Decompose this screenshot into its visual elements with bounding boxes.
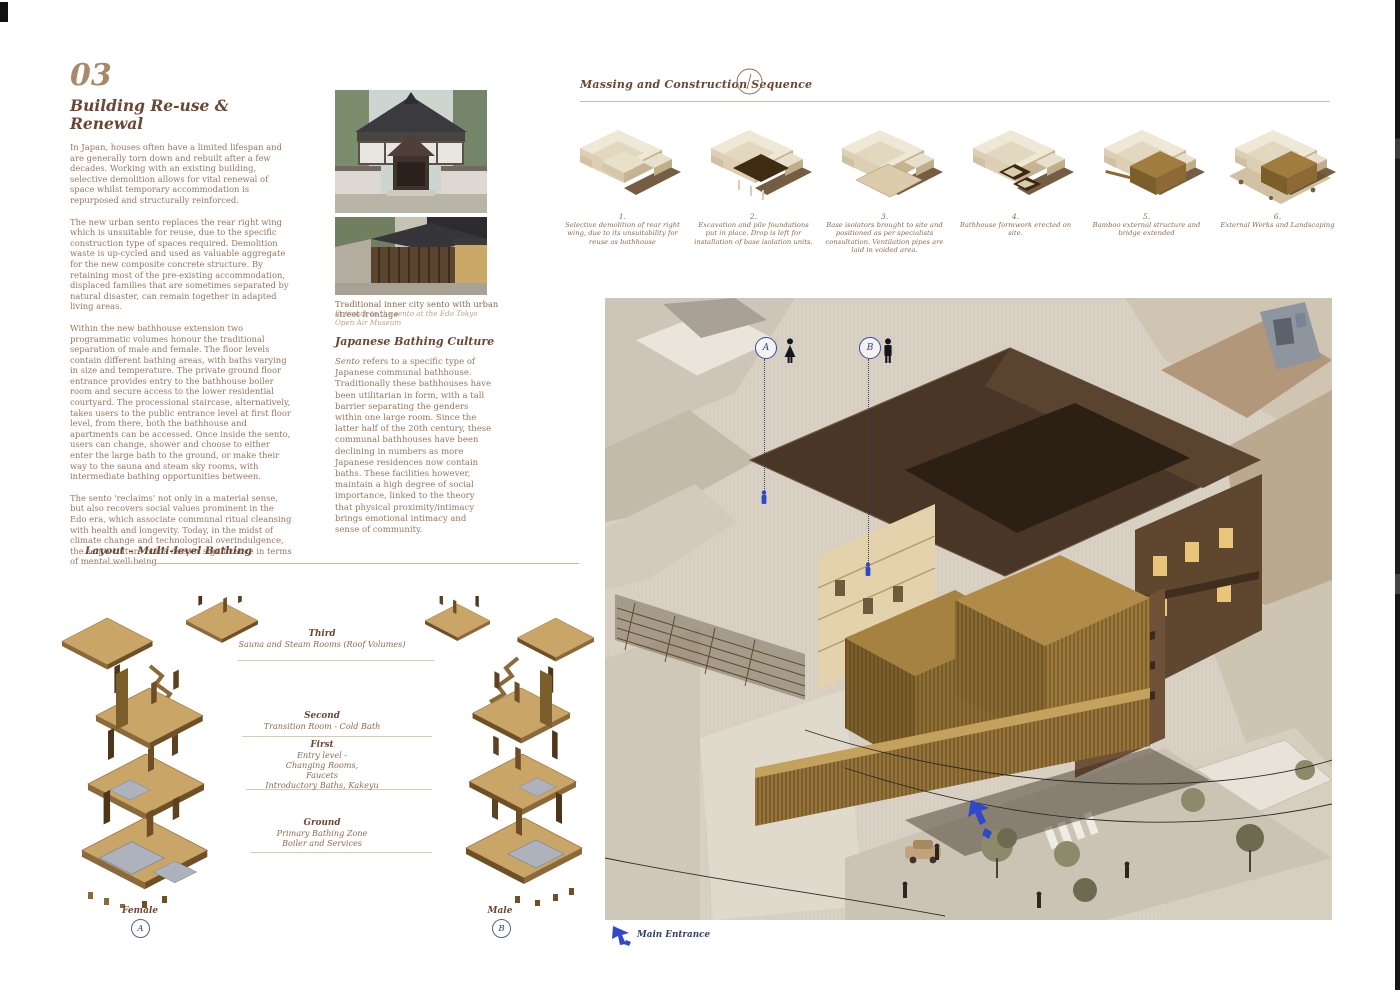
male-marker-b: B xyxy=(492,919,511,938)
portfolio-board: 03 Building Re-use & Renewal In Japan, h… xyxy=(0,0,1400,990)
layout-heading: Layout – Multi-level Bathing xyxy=(85,545,252,557)
render-marker-a: A xyxy=(755,337,777,359)
level-name: First xyxy=(232,740,412,750)
step-number: 5. xyxy=(1143,212,1150,221)
photo-sento-facade xyxy=(335,90,487,213)
drop-line-b xyxy=(868,359,869,569)
step-caption: External Works and Landscaping xyxy=(1217,221,1339,229)
massing-step-4: 4. Bathhouse formwork erected on site. xyxy=(950,110,1081,255)
bathing-culture-heading: Japanese Bathing Culture xyxy=(335,335,494,348)
level-desc: Changing Rooms, xyxy=(232,760,412,770)
massing-diagram-1 xyxy=(562,110,684,210)
step-caption: Selective demolition of rear right wing,… xyxy=(562,221,684,246)
page-title: Building Re-use & Renewal xyxy=(70,97,229,133)
sento-street-illustration xyxy=(335,217,487,295)
step-caption: Bamboo external structure and bridge ext… xyxy=(1086,221,1208,238)
level-desc: Introductory Baths, Kakeyu xyxy=(232,780,412,790)
massing-step-6: 6. External Works and Landscaping xyxy=(1212,110,1343,255)
massing-rule xyxy=(580,101,1330,102)
sento-facade-illustration xyxy=(335,90,487,213)
main-entrance-arrow-icon xyxy=(611,924,633,946)
step-number: 6. xyxy=(1274,212,1281,221)
level-desc: Boiler and Services xyxy=(232,838,412,848)
level-desc: Faucets xyxy=(232,770,412,780)
render-marker-b: B xyxy=(859,337,881,359)
massing-step-1: 1. Selective demolition of rear right wi… xyxy=(557,110,688,255)
massing-diagram-5 xyxy=(1086,110,1208,210)
level-label-second: Second Transition Room - Cold Bath xyxy=(232,711,412,731)
massing-steps: 1. Selective demolition of rear right wi… xyxy=(557,110,1343,255)
level-name: Ground xyxy=(232,818,412,828)
massing-step-2: 2. Excavation and pile foundations put i… xyxy=(688,110,819,255)
intro-text: In Japan, houses often have a limited li… xyxy=(70,142,292,578)
bathing-culture-lead: Sento xyxy=(335,357,360,367)
intro-paragraph: In Japan, houses often have a limited li… xyxy=(70,142,292,206)
scan-corner-mark xyxy=(0,2,8,22)
step-caption: Bathhouse formwork erected on site. xyxy=(955,221,1077,238)
female-label: Female xyxy=(100,906,180,916)
building-render: A B xyxy=(605,298,1332,920)
massing-step-5: 5. Bamboo external structure and bridge … xyxy=(1081,110,1212,255)
female-marker-a: A xyxy=(131,919,150,938)
massing-diagram-4 xyxy=(955,110,1077,210)
main-entrance-label: Main Entrance xyxy=(637,930,710,940)
level-label-first: First Entry level - Changing Rooms, Fauc… xyxy=(232,740,412,790)
scan-edge-strip xyxy=(1395,0,1400,990)
photo-sento-street xyxy=(335,217,487,295)
north-arrow-icon xyxy=(736,68,763,95)
intro-paragraph: Within the new bathhouse extension two p… xyxy=(70,323,292,482)
level-name: Third xyxy=(232,629,412,639)
level-label-ground: Ground Primary Bathing Zone Boiler and S… xyxy=(232,818,412,848)
male-label: Male xyxy=(460,906,540,916)
render-illustration xyxy=(605,298,1332,920)
massing-step-3: 3. Base isolators brought to site and po… xyxy=(819,110,950,255)
layout-rule xyxy=(85,563,579,564)
photo-subcaption: Entrance to the sento at the Edo Tokyo O… xyxy=(335,310,485,327)
massing-diagram-3 xyxy=(824,110,946,210)
step-number: 3. xyxy=(881,212,888,221)
step-number: 2. xyxy=(750,212,757,221)
drop-line-a xyxy=(764,359,765,497)
level-desc: Entry level - xyxy=(232,750,412,760)
male-exploded-axonometric xyxy=(398,596,598,908)
page-title-line1: Building Re-use & xyxy=(70,97,229,115)
section-number: 03 xyxy=(70,58,112,93)
bathing-culture-text: refers to a specific type of Japanese co… xyxy=(335,357,491,535)
bathing-culture-body: Sento refers to a specific type of Japan… xyxy=(335,357,493,536)
level-label-third: Third Sauna and Steam Rooms (Roof Volume… xyxy=(232,629,412,649)
level-desc: Primary Bathing Zone xyxy=(232,828,412,838)
step-caption: Base isolators brought to site and posit… xyxy=(824,221,946,255)
step-number: 4. xyxy=(1012,212,1019,221)
intro-paragraph: The new urban sento replaces the rear ri… xyxy=(70,217,292,312)
axon-male-stack xyxy=(398,596,598,912)
level-desc: Transition Room - Cold Bath xyxy=(232,721,412,731)
level-desc: Sauna and Steam Rooms (Roof Volumes) xyxy=(232,639,412,649)
massing-diagram-6 xyxy=(1217,110,1339,210)
level-name: Second xyxy=(232,711,412,721)
step-number: 1. xyxy=(619,212,626,221)
page-title-line2: Renewal xyxy=(70,115,229,133)
massing-diagram-2 xyxy=(693,110,815,210)
massing-heading: Massing and Construction Sequence xyxy=(580,78,812,91)
step-caption: Excavation and pile foundations put in p… xyxy=(693,221,815,246)
